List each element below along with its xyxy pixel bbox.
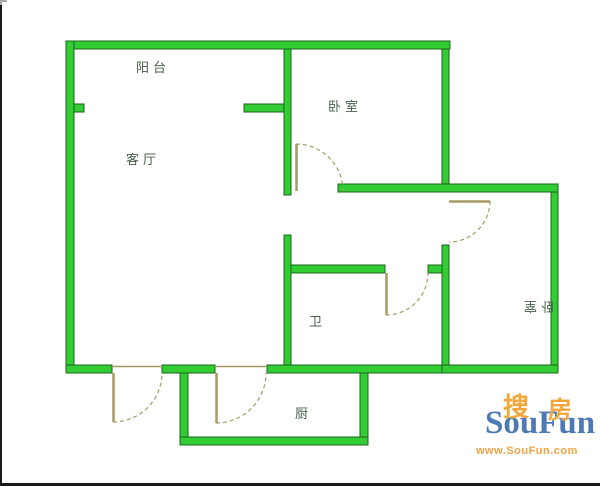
wall-balcony-stub-right	[244, 104, 284, 112]
bedroom-top-door-arc	[296, 144, 343, 191]
wall-kitchen-left	[180, 373, 188, 445]
wall-kitchen-right	[360, 373, 368, 437]
walls-stroke	[66, 41, 558, 445]
wall-bathroom-top	[291, 265, 385, 273]
wall-bottom-a	[66, 365, 112, 373]
kitchen-door-arc	[216, 373, 266, 423]
wall-kitchen-bottom	[180, 437, 368, 445]
wall-bottom-c	[267, 365, 442, 373]
wall-bottom-b	[162, 365, 215, 373]
bathroom-door-arc	[386, 273, 428, 315]
wall-left	[66, 41, 74, 373]
wall-balcony-stub-left	[74, 104, 84, 112]
wall-bedroom-right-east	[551, 192, 558, 373]
room-label-living-room: 客厅	[126, 152, 160, 168]
watermark-url: www.SouFun.com	[476, 445, 578, 457]
room-label-bathroom: 卫	[309, 315, 326, 330]
wall-hall-horizontal	[338, 184, 558, 192]
wall-bedroom-right-west-lower	[442, 245, 449, 365]
watermark-cn-sou: 搜	[503, 395, 529, 421]
wall-bathroom-top-stub	[428, 265, 442, 273]
room-label-kitchen: 厨	[295, 407, 312, 422]
room-label-bedroom-right: 卧室	[520, 298, 554, 314]
wall-top	[66, 41, 450, 49]
bedroom-right-door-arc	[449, 201, 490, 242]
wall-living-right-lower	[284, 235, 291, 373]
wall-bedroom-top-right	[442, 49, 449, 184]
soufun-watermark: SouFun 搜 房 www.SouFun.com	[452, 390, 600, 462]
entry-door-arc	[113, 373, 162, 422]
watermark-brand-text: SouFun	[485, 407, 595, 440]
room-label-bedroom-top: 卧室	[328, 99, 362, 115]
watermark-cn-fang: 房	[548, 398, 572, 422]
room-label-balcony: 阳台	[136, 61, 170, 76]
floorplan-image: 阳台 客厅 卧室 卫 厨 卧室 SouFun 搜 房 www.SouFun.co…	[0, 0, 600, 486]
walls	[66, 41, 558, 445]
wall-living-right-upper	[284, 49, 291, 195]
wall-bedroom-right-bottom	[442, 365, 558, 373]
corner-mark-vertical	[0, 0, 2, 5]
